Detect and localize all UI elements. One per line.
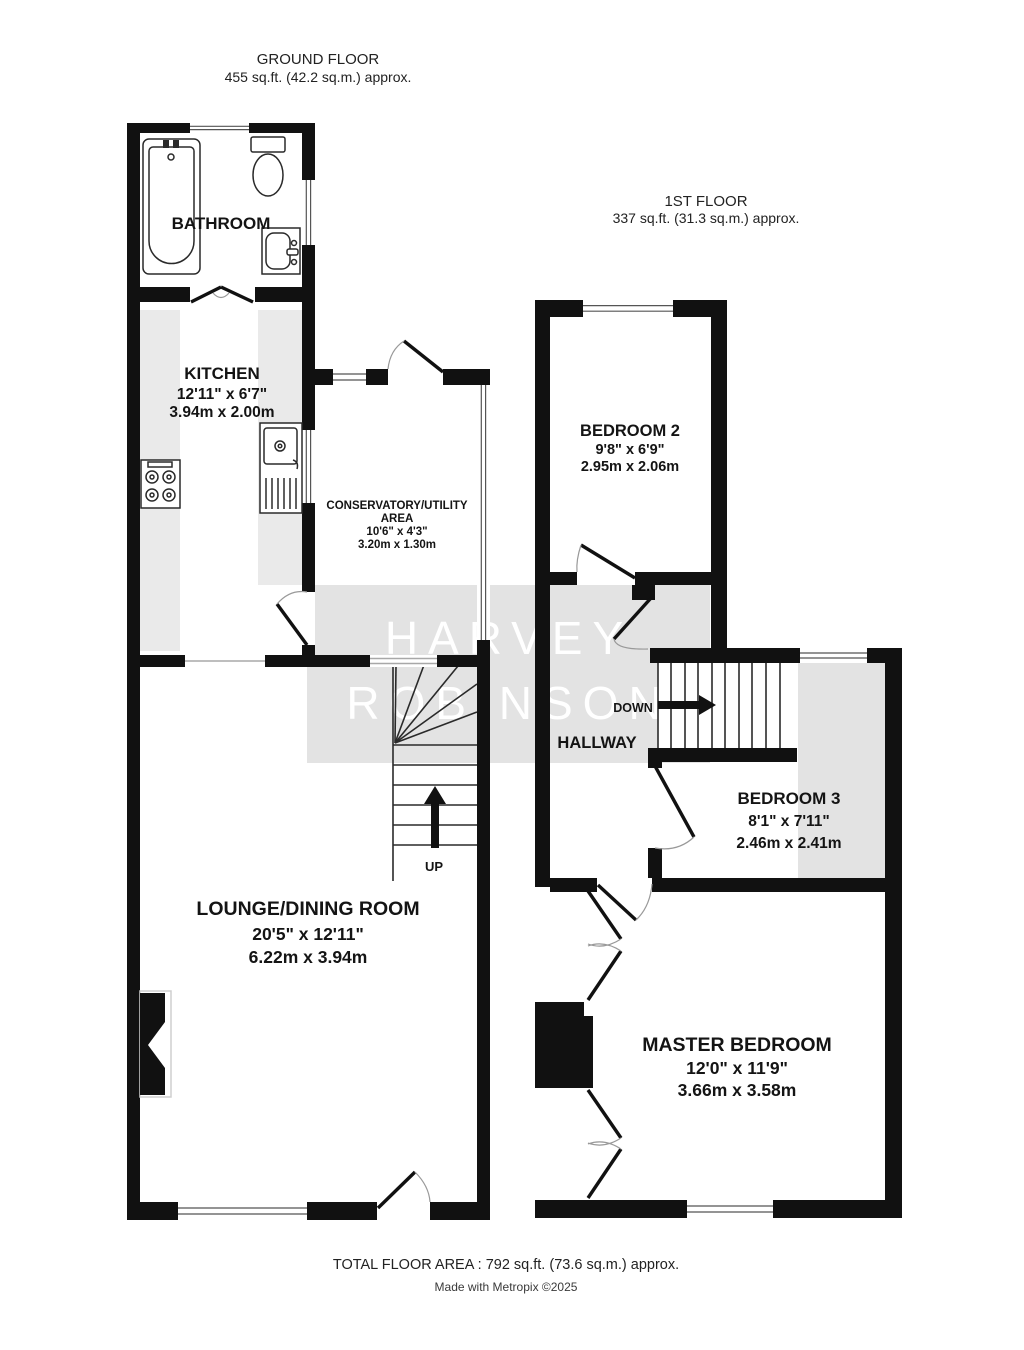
conservatory-size-imperial: 10'6" x 4'3": [366, 526, 427, 538]
window-master-bottom: [687, 1200, 773, 1218]
stairs-down-label: DOWN: [613, 701, 653, 715]
bedroom2-size-metric: 2.95m x 2.06m: [581, 459, 679, 475]
window-bedroom2-top: [583, 300, 673, 317]
master-size-metric: 3.66m x 3.58m: [678, 1080, 797, 1100]
total-floor-area: TOTAL FLOOR AREA : 792 sq.ft. (73.6 sq.m…: [333, 1257, 679, 1273]
bedroom2-label: BEDROOM 2: [580, 422, 680, 440]
room-kitchen: KITCHEN 12'11" x 6'7" 3.94m x 2.00m: [169, 364, 274, 421]
lounge-size-imperial: 20'5" x 12'11": [252, 924, 364, 944]
hallway-label: HALLWAY: [557, 734, 636, 752]
bedroom3-size-imperial: 8'1" x 7'11": [748, 813, 830, 830]
conservatory-label-line1: CONSERVATORY/UTILITY: [326, 500, 468, 512]
ground-floor-area: 455 sq.ft. (42.2 sq.m.) approx.: [225, 69, 412, 85]
window-landing-top: [800, 648, 867, 663]
room-bedroom3: BEDROOM 3 8'1" x 7'11" 2.46m x 2.41m: [736, 789, 841, 852]
door-conservatory-exterior: [404, 341, 443, 372]
stove: [141, 460, 180, 508]
bedroom2-size-imperial: 9'8" x 6'9": [595, 442, 664, 458]
kitchen-size-metric: 3.94m x 2.00m: [169, 404, 274, 421]
lounge-size-metric: 6.22m x 3.94m: [249, 947, 368, 967]
master-size-imperial: 12'0" x 11'9": [686, 1058, 788, 1078]
window-conservatory-right: [477, 385, 490, 640]
first-floor-area: 337 sq.ft. (31.3 sq.m.) approx.: [613, 210, 800, 226]
window-lounge-bottom: [178, 1202, 307, 1220]
window-kitchen-right: [302, 430, 315, 503]
conservatory-size-metric: 3.20m x 1.30m: [358, 539, 436, 551]
kitchen-label: KITCHEN: [184, 364, 260, 383]
window-bathroom-top: [190, 123, 249, 133]
kitchen-sink: [260, 423, 302, 513]
bathroom-sink: [262, 228, 300, 274]
window-conservatory-top: [333, 369, 366, 385]
bathtub: [143, 139, 200, 274]
stairs-up-label: UP: [425, 859, 443, 874]
master-label: MASTER BEDROOM: [642, 1034, 832, 1056]
room-bedroom2: BEDROOM 2 9'8" x 6'9" 2.95m x 2.06m: [580, 422, 680, 475]
first-floor-title: 1ST FLOOR: [664, 193, 747, 210]
floorplan-page: HARVEY ROBINSON: [0, 0, 1024, 1350]
footer: TOTAL FLOOR AREA : 792 sq.ft. (73.6 sq.m…: [333, 1257, 679, 1294]
lounge-label: LOUNGE/DINING ROOM: [196, 898, 419, 920]
bedroom3-size-metric: 2.46m x 2.41m: [736, 835, 841, 852]
kitchen-size-imperial: 12'11" x 6'7": [177, 386, 267, 403]
metropix-credit: Made with Metropix ©2025: [435, 1280, 578, 1294]
window-bathroom-right: [302, 180, 315, 245]
floorplan-svg: HARVEY ROBINSON: [0, 0, 1024, 1350]
room-bathroom: BATHROOM: [172, 214, 271, 233]
bathroom-label: BATHROOM: [172, 214, 271, 233]
bedroom3-label: BEDROOM 3: [738, 789, 841, 808]
toilet: [251, 137, 285, 196]
ground-floor-title: GROUND FLOOR: [257, 51, 380, 68]
room-master-bedroom: MASTER BEDROOM 12'0" x 11'9" 3.66m x 3.5…: [642, 1034, 832, 1100]
conservatory-label-line2: AREA: [381, 513, 414, 525]
room-lounge: LOUNGE/DINING ROOM 20'5" x 12'11" 6.22m …: [196, 898, 419, 967]
room-conservatory: CONSERVATORY/UTILITY AREA 10'6" x 4'3" 3…: [326, 500, 468, 551]
up-arrow-icon: [424, 786, 446, 848]
